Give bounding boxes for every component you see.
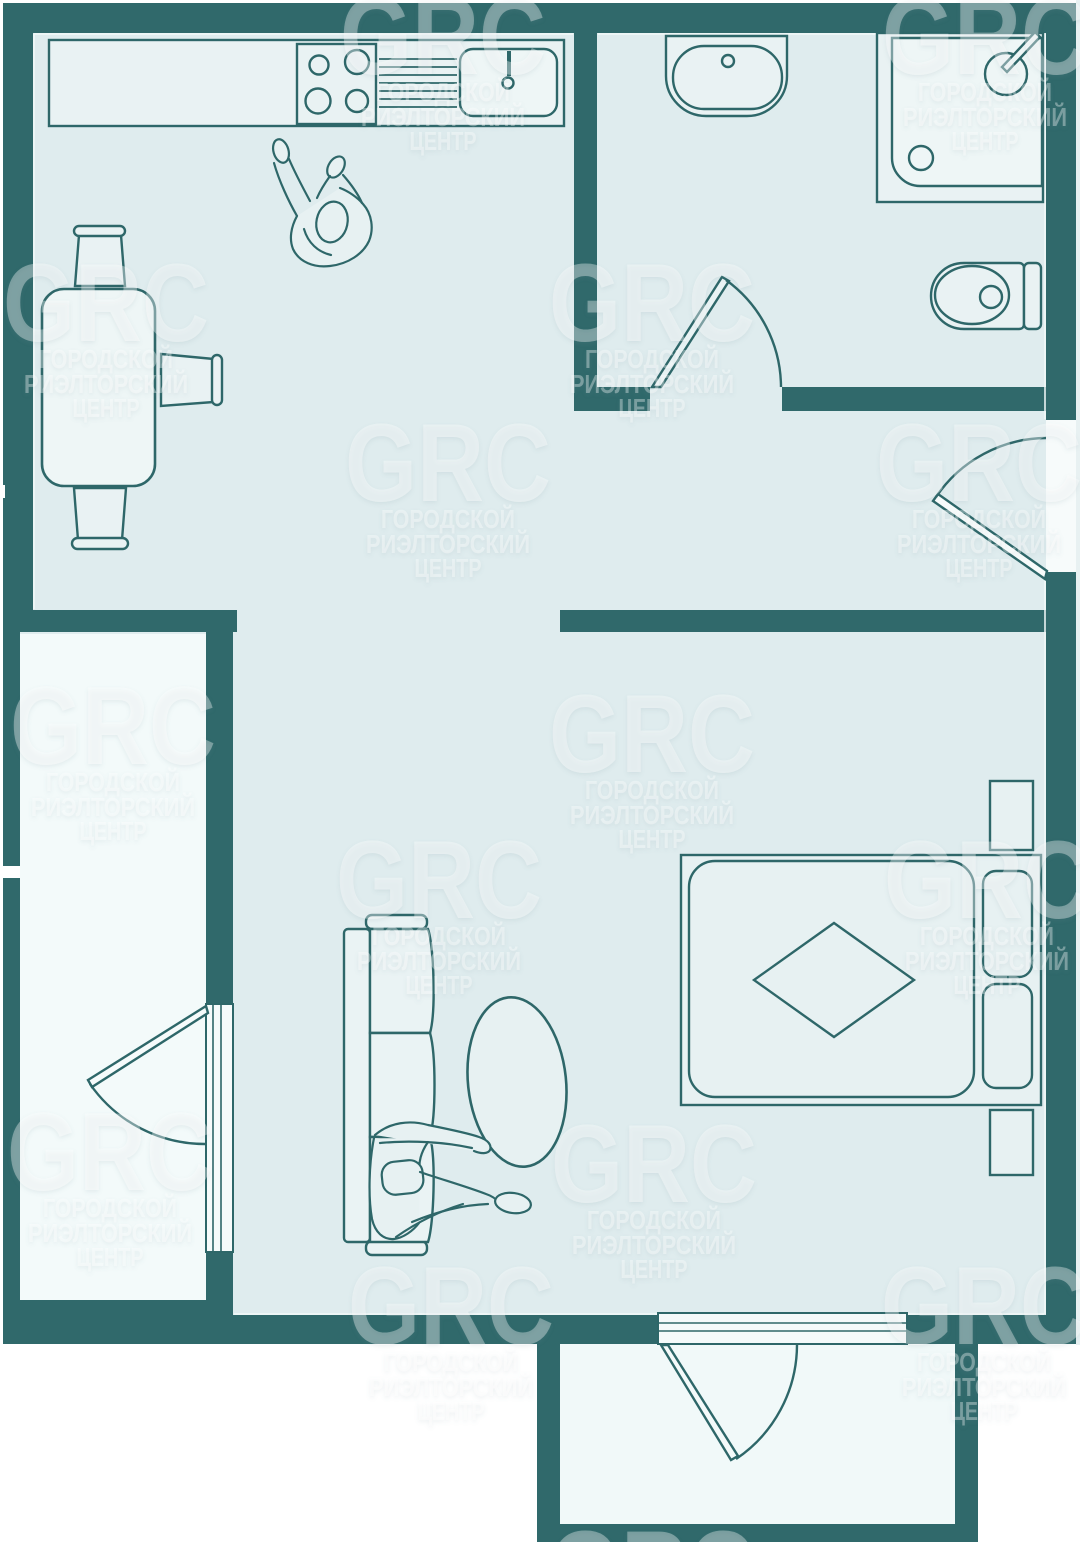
svg-text:GRC: GRC bbox=[549, 1509, 755, 1542]
svg-text:ЦЕНТР: ЦЕНТР bbox=[418, 1396, 485, 1426]
svg-text:ЦЕНТР: ЦЕНТР bbox=[77, 1242, 144, 1272]
svg-text:ЦЕНТР: ЦЕНТР bbox=[415, 553, 482, 583]
svg-text:ЦЕНТР: ЦЕНТР bbox=[619, 824, 686, 854]
svg-text:ЦЕНТР: ЦЕНТР bbox=[621, 1254, 688, 1284]
svg-text:ЦЕНТР: ЦЕНТР bbox=[951, 1396, 1018, 1426]
svg-text:ЦЕНТР: ЦЕНТР bbox=[946, 553, 1013, 583]
svg-text:ЦЕНТР: ЦЕНТР bbox=[410, 126, 477, 156]
svg-text:ЦЕНТР: ЦЕНТР bbox=[619, 393, 686, 423]
svg-text:ЦЕНТР: ЦЕНТР bbox=[80, 816, 147, 846]
svg-text:ЦЕНТР: ЦЕНТР bbox=[952, 126, 1019, 156]
svg-text:ЦЕНТР: ЦЕНТР bbox=[73, 393, 140, 423]
svg-text:ЦЕНТР: ЦЕНТР bbox=[954, 970, 1021, 1000]
svg-text:ЦЕНТР: ЦЕНТР bbox=[406, 970, 473, 1000]
